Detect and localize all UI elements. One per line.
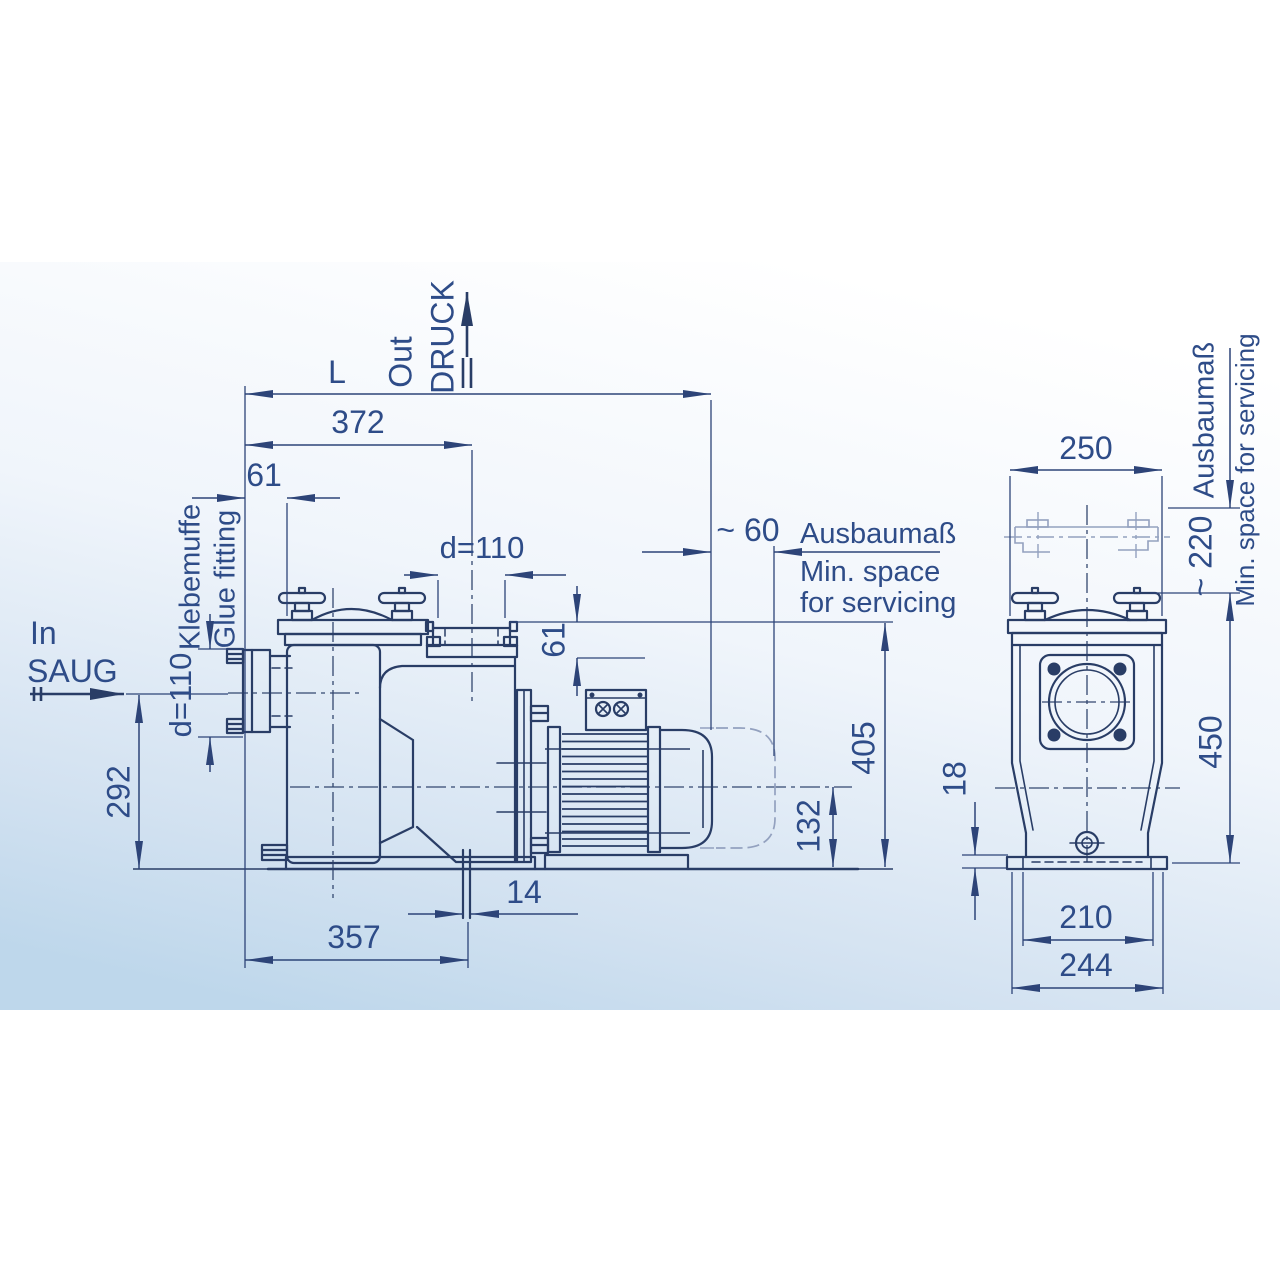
dim-18-text: 18: [936, 761, 972, 797]
dim-450-text: 450: [1192, 715, 1228, 768]
glue-fitting-label-de: Klebemuffe: [175, 504, 207, 650]
dim-250-text: 250: [1059, 430, 1112, 466]
dim-210-text: 210: [1059, 899, 1112, 935]
dim-132-text: 132: [790, 799, 826, 852]
end-service-note-de: Ausbaumaß: [1189, 342, 1221, 498]
dim-d110-top-text: d=110: [440, 530, 525, 565]
service-note: Ausbaumaß Min. space for servicing: [800, 518, 956, 619]
dim-244-text: 244: [1059, 947, 1112, 983]
service-note-de: Ausbaumaß: [800, 518, 956, 550]
dim-372-text: 372: [331, 404, 384, 440]
dim-405-text: 405: [845, 721, 881, 774]
flange-bolt-icon: [1048, 663, 1061, 676]
flange-bolt-icon: [1114, 663, 1127, 676]
dim-61-text: 61: [246, 457, 282, 493]
glue-fitting-label-en: Glue fitting: [210, 510, 242, 649]
end-service-note-en: Min. space for servicing: [1230, 333, 1260, 606]
dim-220-text: ~ 220: [1182, 516, 1218, 597]
service-note-en2: for servicing: [800, 587, 956, 619]
dim-L-text: L: [328, 354, 346, 390]
dim-d110-left-text: d=110: [163, 653, 198, 738]
flow-out-label-en: Out: [382, 336, 418, 388]
flow-in-label-en: In: [30, 615, 57, 651]
dim-61-port-text: 61: [535, 622, 571, 658]
pump-dimension-drawing: In SAUG Out DRUCK L: [0, 0, 1280, 1280]
dim-14-text: 14: [506, 874, 542, 910]
flow-in-label-de: SAUG: [27, 653, 118, 689]
flange-bolt-icon: [1114, 729, 1127, 742]
flow-out-label-de: DRUCK: [424, 280, 460, 394]
flange-bolt-icon: [1048, 729, 1061, 742]
page: In SAUG Out DRUCK L: [0, 0, 1280, 1280]
dim-292-text: 292: [100, 765, 136, 818]
service-note-en1: Min. space: [800, 556, 940, 588]
dim-357-text: 357: [327, 919, 380, 955]
dim-60-text: ~ 60: [716, 512, 779, 548]
